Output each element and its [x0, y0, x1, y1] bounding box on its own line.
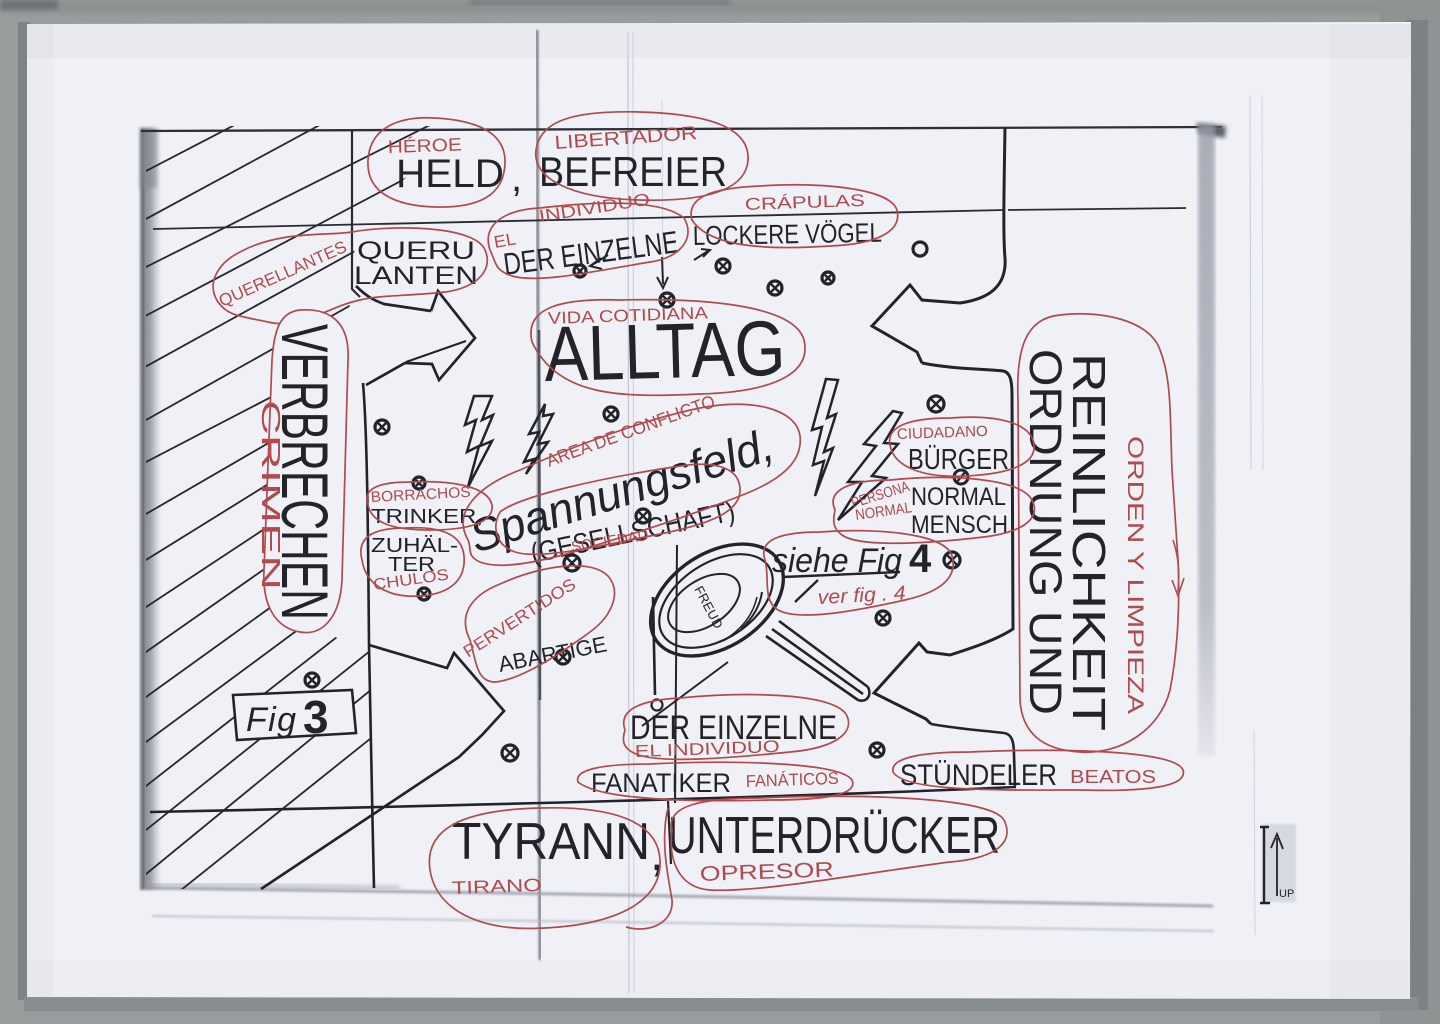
- svg-text:ORDEN Y LIMPIEZA: ORDEN Y LIMPIEZA: [1123, 436, 1148, 714]
- svg-text:TYRANN: TYRANN: [452, 813, 650, 871]
- svg-text:EL: EL: [492, 229, 517, 252]
- svg-text:FANÁTICOS: FANÁTICOS: [745, 769, 839, 791]
- svg-text:siehe Fig: siehe Fig: [772, 542, 902, 580]
- svg-text:UP: UP: [1279, 888, 1294, 900]
- svg-text:Fig: Fig: [246, 701, 296, 739]
- svg-text:BÜRGER: BÜRGER: [908, 444, 1009, 476]
- svg-text:UNTERDRÜCKER: UNTERDRÜCKER: [668, 807, 1000, 865]
- svg-text:CRIMEN: CRIMEN: [256, 400, 286, 590]
- svg-text:3: 3: [303, 691, 329, 743]
- svg-text:,: ,: [511, 156, 522, 200]
- svg-text:HÉROE: HÉROE: [387, 134, 462, 157]
- svg-text:BEATOS: BEATOS: [1070, 767, 1156, 787]
- svg-text:STÜNDELER: STÜNDELER: [900, 759, 1057, 792]
- svg-text:HELD: HELD: [396, 152, 504, 196]
- svg-text:LANTEN: LANTEN: [354, 262, 478, 290]
- svg-text:NORMAL: NORMAL: [911, 483, 1006, 511]
- svg-text:CIUDADANO: CIUDADANO: [897, 423, 989, 443]
- svg-text:TIRANO: TIRANO: [451, 875, 542, 898]
- svg-text:ver fig . 4: ver fig . 4: [817, 582, 906, 609]
- svg-text:REINLICHKEIT: REINLICHKEIT: [1063, 353, 1115, 731]
- svg-text:QUERU: QUERU: [357, 237, 475, 265]
- svg-text:,: ,: [650, 825, 664, 881]
- svg-text:LOCKERE VÖGEL: LOCKERE VÖGEL: [693, 218, 882, 251]
